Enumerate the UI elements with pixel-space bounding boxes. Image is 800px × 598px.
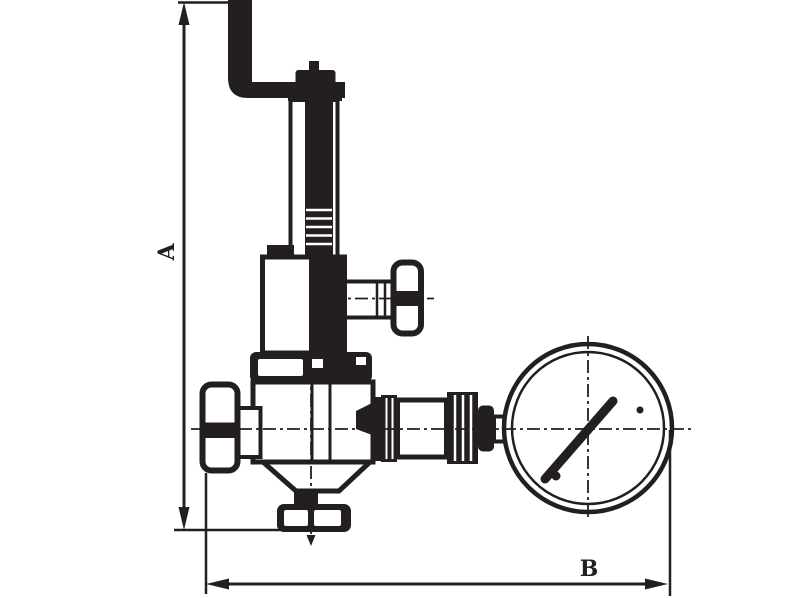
centerline-arrow-icon bbox=[307, 535, 316, 546]
flange-slot bbox=[312, 359, 323, 368]
union-fittings bbox=[372, 392, 515, 464]
inlet-knob-band bbox=[205, 423, 235, 439]
spring-bonnet-tube bbox=[291, 100, 338, 257]
chamber-core bbox=[309, 260, 345, 351]
arrow-down-icon bbox=[179, 507, 190, 530]
inlet-stem bbox=[238, 408, 261, 457]
body-taper bbox=[263, 462, 370, 491]
bonnet-spindle bbox=[305, 101, 333, 255]
tee-stem bbox=[345, 282, 394, 318]
dial-dot bbox=[637, 407, 644, 414]
outlet-neck bbox=[294, 489, 318, 506]
cap bbox=[296, 70, 336, 87]
valve-gauge-technical-drawing: A B bbox=[0, 0, 800, 598]
flange-slot bbox=[356, 357, 366, 365]
bottom-flange-window bbox=[314, 510, 341, 526]
dim-b-label: B bbox=[580, 556, 599, 582]
arrow-up-icon bbox=[179, 2, 190, 25]
arrow-right-icon bbox=[645, 579, 668, 590]
dim-a-label: A bbox=[154, 243, 180, 262]
valve-top-cap bbox=[288, 61, 342, 101]
flange-window bbox=[258, 359, 303, 376]
needle-pivot-dot bbox=[552, 472, 561, 481]
arrow-left-icon bbox=[206, 579, 229, 590]
figure-canvas: A B bbox=[0, 0, 800, 598]
bottom-flange-window bbox=[284, 510, 308, 526]
